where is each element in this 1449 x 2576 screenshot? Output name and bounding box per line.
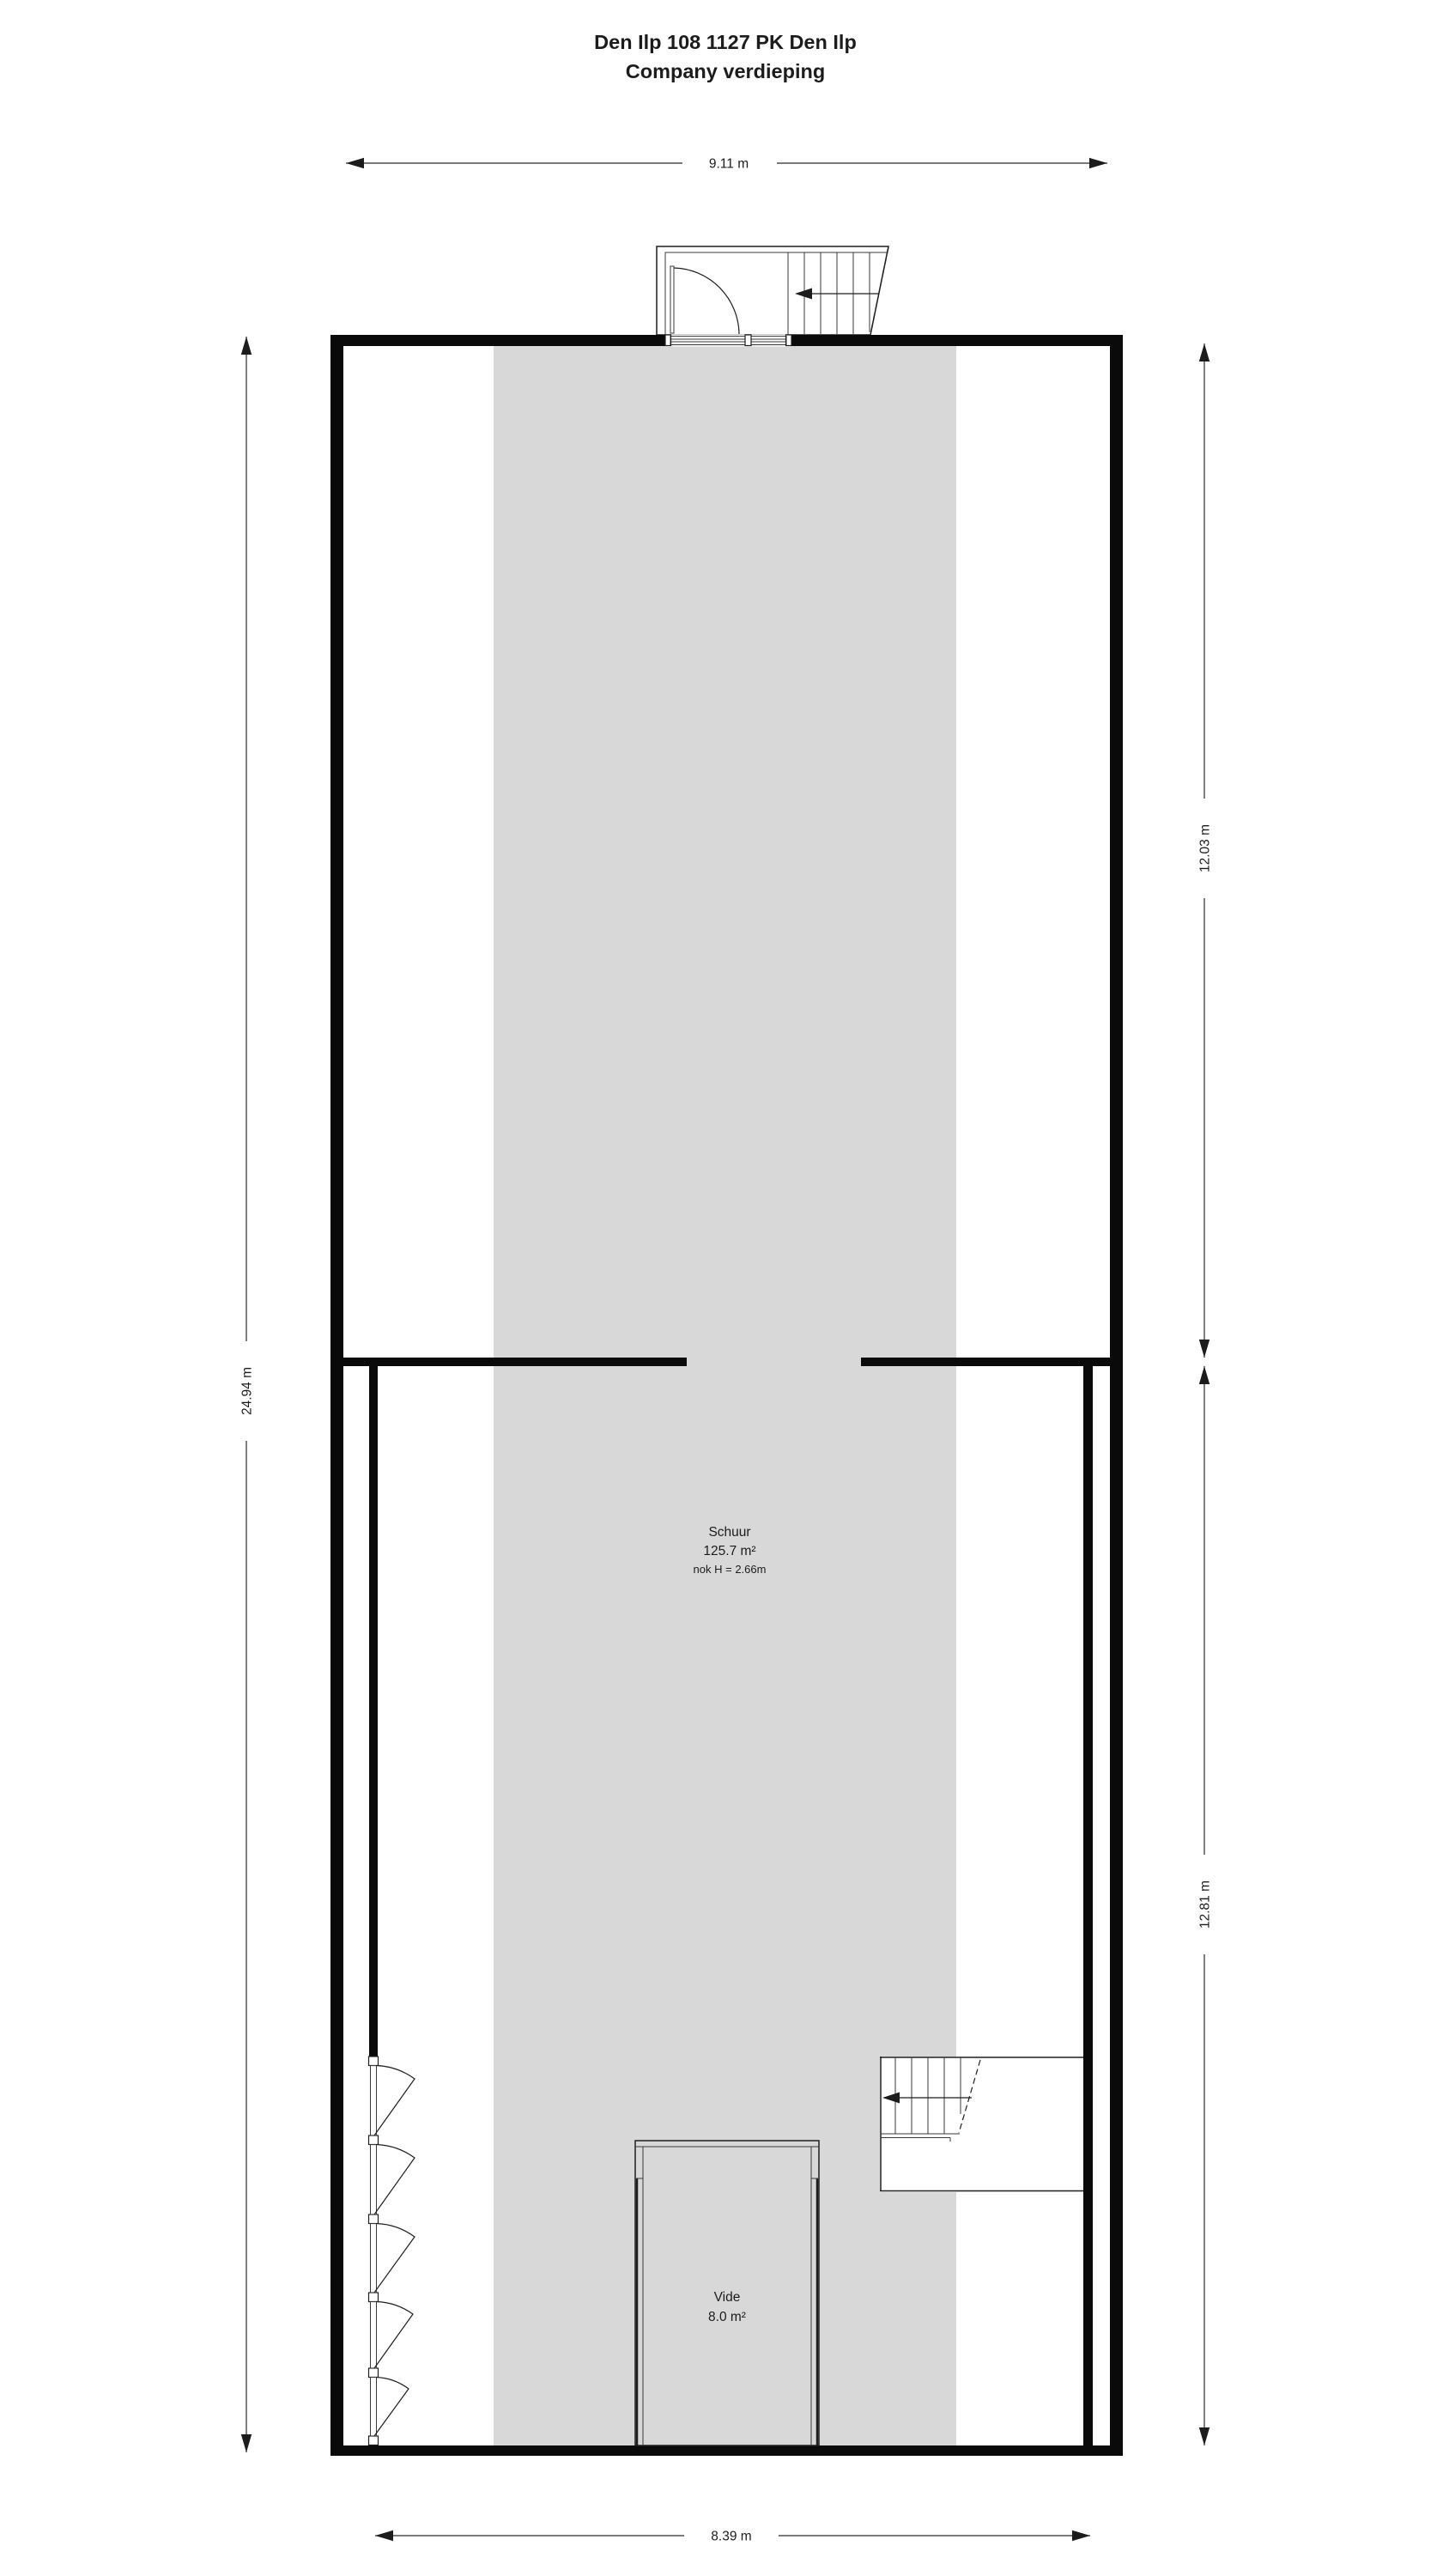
upper-stairs (795, 247, 888, 334)
door-leaf (371, 2302, 377, 2369)
door-frame-post (369, 2057, 379, 2066)
stair-direction-arrow (795, 289, 812, 300)
arrow-up-icon (1199, 1366, 1210, 1384)
door-swing-symbol (374, 2145, 415, 2215)
top-wall-openings (665, 335, 791, 347)
arrow-left-icon (375, 2530, 393, 2541)
middle-wall-left-segment (343, 1358, 687, 1366)
door-frame-post (369, 2436, 379, 2445)
dimension-bottom: 8.39 m (375, 2530, 1090, 2544)
door-frame-post (369, 2136, 379, 2145)
door-frame-post (369, 2215, 379, 2224)
entry-door (670, 266, 739, 334)
door-swing-symbol (374, 2066, 415, 2136)
lower-stairwell (880, 2057, 1083, 2192)
door-leaf (371, 2066, 377, 2136)
dimension-label-right-upper: 12.03 m (1198, 824, 1213, 872)
schuur-ridge-height-label: nok H = 2.66m (694, 1563, 767, 1576)
dimension-right-upper: 12.03 m (1198, 343, 1213, 1358)
arrow-up-icon (1199, 343, 1210, 361)
arrow-down-icon (1199, 2427, 1210, 2445)
left-outer-wall (330, 335, 343, 2456)
floor-plan-page: Den Ilp 108 1127 PK Den Ilp Company verd… (0, 0, 1449, 2576)
arrow-right-icon (1089, 158, 1107, 168)
arrow-left-icon (346, 158, 364, 168)
right-inner-wall (1083, 1366, 1093, 2445)
bottom-wall (330, 2445, 1123, 2456)
dimension-label-top: 9.11 m (709, 157, 749, 172)
schuur-area-label: 125.7 m² (703, 1544, 755, 1558)
stairwell-mask (880, 2057, 1083, 2192)
door-swing-symbol (374, 2224, 415, 2293)
dimension-label-right-lower: 12.81 m (1198, 1880, 1213, 1929)
left-inner-wall (369, 1366, 378, 2057)
left-swing-doors (369, 2057, 415, 2445)
arrow-down-icon (241, 2434, 252, 2452)
title-line-2: Company verdieping (626, 60, 825, 82)
door-leaf (670, 266, 674, 333)
dimension-label-bottom: 8.39 m (711, 2530, 751, 2544)
door-frame-post (369, 2293, 379, 2302)
arrow-right-icon (1072, 2530, 1090, 2541)
floor-plan-drawing: Den Ilp 108 1127 PK Den Ilp Company verd… (0, 0, 1449, 2576)
door-swing-symbol (374, 2302, 413, 2369)
door-leaf (371, 2378, 377, 2437)
vide-label: Vide (714, 2290, 741, 2305)
dimension-top: 9.11 m (346, 157, 1107, 172)
dimension-left: 24.94 m (240, 337, 255, 2452)
page-title: Den Ilp 108 1127 PK Den Ilp Company verd… (594, 31, 857, 82)
dimension-label-left: 24.94 m (240, 1367, 255, 1415)
entry-vestibule (665, 252, 788, 335)
door-swing-arc (674, 268, 739, 334)
door-frame-post (369, 2368, 379, 2378)
entry-structure (657, 246, 888, 335)
arrow-up-icon (241, 337, 252, 355)
dimension-right-lower: 12.81 m (1198, 1366, 1213, 2445)
arrow-down-icon (1199, 1340, 1210, 1358)
vide-area-label: 8.0 m² (708, 2310, 746, 2324)
door-swing-symbol (374, 2378, 409, 2437)
door-leaf (371, 2145, 377, 2215)
title-line-1: Den Ilp 108 1127 PK Den Ilp (594, 31, 857, 53)
middle-wall-right-segment (861, 1358, 1110, 1366)
right-outer-wall (1110, 335, 1123, 2456)
door-leaf (371, 2224, 377, 2293)
schuur-label: Schuur (708, 1525, 750, 1540)
